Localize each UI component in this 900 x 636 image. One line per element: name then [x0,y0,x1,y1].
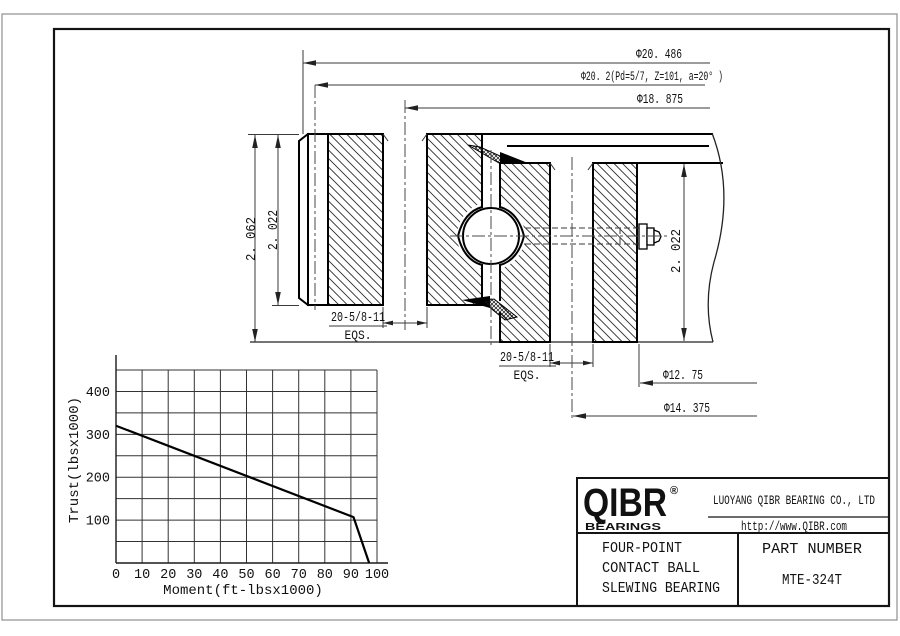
label-outer-bolt-holes: 20-5/8-11 [500,351,554,366]
label-outer-bolt-holes-note: EQS. [514,368,541,383]
chart-y-axis-title: Trust(lbsx1000) [67,397,83,523]
brand-logo: QIBR ® BEARINGS [583,481,678,533]
chart-x-tick: 40 [212,568,228,583]
label-inner-bolt-holes-note: EQS. [345,328,372,343]
chart-series [116,426,369,563]
chart-x-tick: 90 [343,568,359,583]
part-number-label: PART NUMBER [762,541,862,558]
chart-x-tick: 30 [186,568,202,583]
chart-y-tick: 200 [86,472,110,487]
chart-x-tick: 100 [365,568,389,583]
label-inner-bolt-holes: 20-5/8-11 [331,311,385,326]
chart-x-tick: 0 [112,568,120,583]
dim-overall-height: 2. 062 [245,217,260,261]
chart-x-tick: 80 [317,568,333,583]
dim-outer-bolt-circle: Φ14. 375 [664,402,710,417]
chart-y-tick: 300 [86,429,110,444]
chart-grid [116,370,377,563]
inner-ring-hatch-left [328,134,383,305]
product-type-line1: FOUR-POINT [602,540,682,557]
top-seal-lip [500,152,528,164]
dim-outer-ring-bore: Φ12. 75 [663,369,703,384]
dim-outer-ring-height: 2. 022 [670,229,685,273]
chart-y-tick: 100 [86,515,110,530]
chart-x-tick-labels: 0102030405060708090100 [112,568,389,583]
dim-inner-ring-height: 2. 022 [267,210,282,250]
company-name: LUOYANG QIBR BEARING CO., LTD [713,494,875,508]
product-type-line3: SLEWING BEARING [602,580,720,597]
title-block: QIBR ® BEARINGS LUOYANG QIBR BEARING CO.… [577,478,889,606]
inner-ring-left-edge [299,134,308,305]
chart-y-tick-labels: 100200300400 [86,386,110,530]
dim-outer-diameter: Φ20. 486 [636,48,682,63]
chart-x-tick: 10 [134,568,150,583]
chart-line-allowable-load-curve [116,426,369,563]
outer-ring-hatch-right [593,163,637,342]
registered-mark-icon: ® [670,485,678,497]
engineering-drawing-sheet: Φ20. 486 Φ20. 2(Pd=5/7, Z=101, a=20° ) Φ… [0,0,900,636]
brand-logo-text: QIBR [583,481,667,525]
chart-x-tick: 20 [160,568,176,583]
dim-inner-bolt-circle: Φ18. 875 [637,93,683,108]
product-type-line2: CONTACT BALL [602,560,700,577]
chart-y-tick: 400 [86,386,110,401]
chart-x-tick: 70 [291,568,307,583]
drawing-canvas: Φ20. 486 Φ20. 2(Pd=5/7, Z=101, a=20° ) Φ… [0,0,900,636]
brand-logo-subtext: BEARINGS [585,522,661,533]
load-chart: 0102030405060708090100 100200300400 Mome… [67,355,389,599]
dim-gear-pitch: Φ20. 2(Pd=5/7, Z=101, a=20° ) [581,69,723,84]
company-website: http://www.QIBR.com [741,520,847,534]
chart-axes [116,355,388,563]
part-number-value: MTE-324T [782,572,842,589]
structure-break-line [708,133,724,342]
chart-x-tick: 60 [264,568,280,583]
chart-x-axis-title: Moment(ft-lbsx1000) [163,583,323,599]
chart-x-tick: 50 [238,568,254,583]
